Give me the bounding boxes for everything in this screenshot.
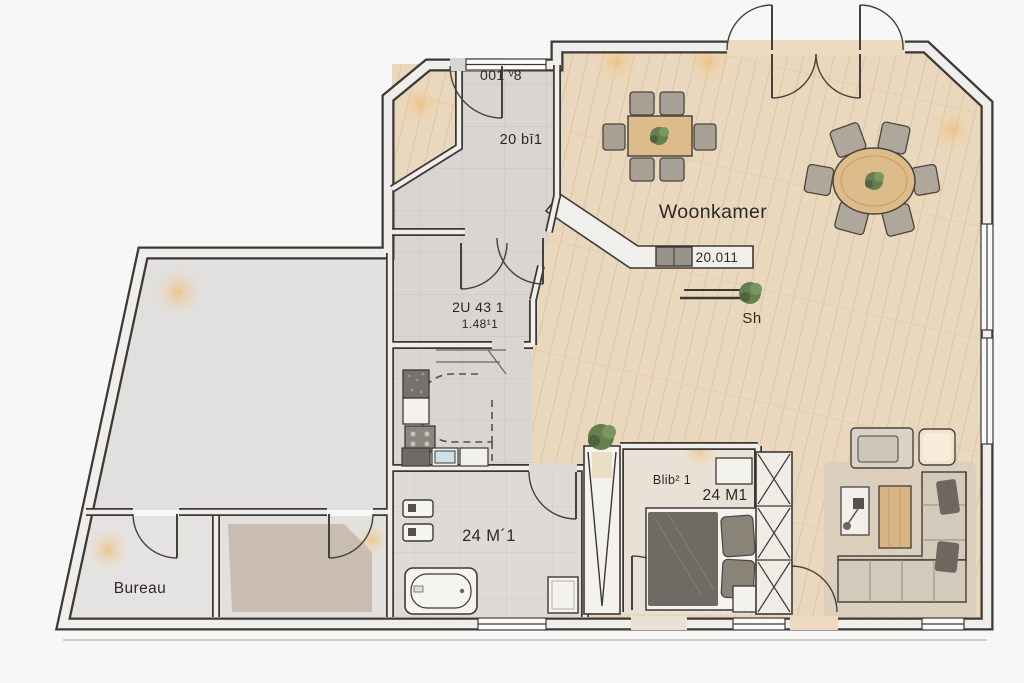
label-living-room-code: 20.011 [696, 250, 739, 265]
label-bathroom: 24 M´1 [462, 527, 516, 545]
label-entry-hall: 20 bī1 [500, 132, 543, 148]
sink [435, 451, 455, 463]
carpet [228, 524, 372, 612]
bedroom-cabinet [733, 586, 757, 612]
label-bedroom-2: 24 M1 [702, 487, 747, 504]
throw-cushion [934, 541, 959, 573]
toilet [403, 500, 433, 517]
label-shelf: Sh [742, 310, 761, 327]
kitchen-cabinet [403, 398, 429, 424]
side-table [841, 487, 869, 535]
window-bottom-bath [478, 618, 546, 630]
label-bedroom-1: Blib² 1 [653, 473, 691, 487]
label-office: Bureau [114, 580, 166, 597]
floor-plan-svg: 001 ᵛ8 20 bī1 Woonkamer 20.011 Sh 2U 43 … [0, 0, 1024, 683]
kitchen-counter [402, 448, 488, 466]
pouf [919, 429, 955, 465]
duvet [648, 512, 718, 606]
shower-tray [548, 577, 578, 613]
label-hallway-1: 2U 43 1 [452, 299, 504, 315]
wardrobe-left [584, 446, 620, 614]
bathtub [405, 568, 477, 614]
wardrobe-right [756, 452, 792, 614]
label-living-room: Woonkamer [659, 201, 767, 223]
window-right-upper [981, 224, 993, 330]
window-bottom-living [922, 618, 964, 630]
floor-lamp [843, 522, 851, 530]
label-hallway-2: 1.48¹1 [462, 317, 498, 331]
lounge-area [838, 428, 966, 602]
floor-plan-canvas: 001 ᵛ8 20 bī1 Woonkamer 20.011 Sh 2U 43 … [0, 0, 1024, 683]
bidet [403, 524, 433, 541]
nightstand [716, 458, 752, 484]
coffee-table [879, 486, 911, 548]
label-window-code: 001 ᵛ8 [480, 67, 522, 83]
window-bottom-bedroom [733, 618, 785, 630]
pillow [721, 515, 756, 557]
sideboard [656, 247, 692, 266]
window-right-lower [981, 338, 993, 444]
fridge [403, 370, 429, 398]
armchair [851, 428, 913, 468]
